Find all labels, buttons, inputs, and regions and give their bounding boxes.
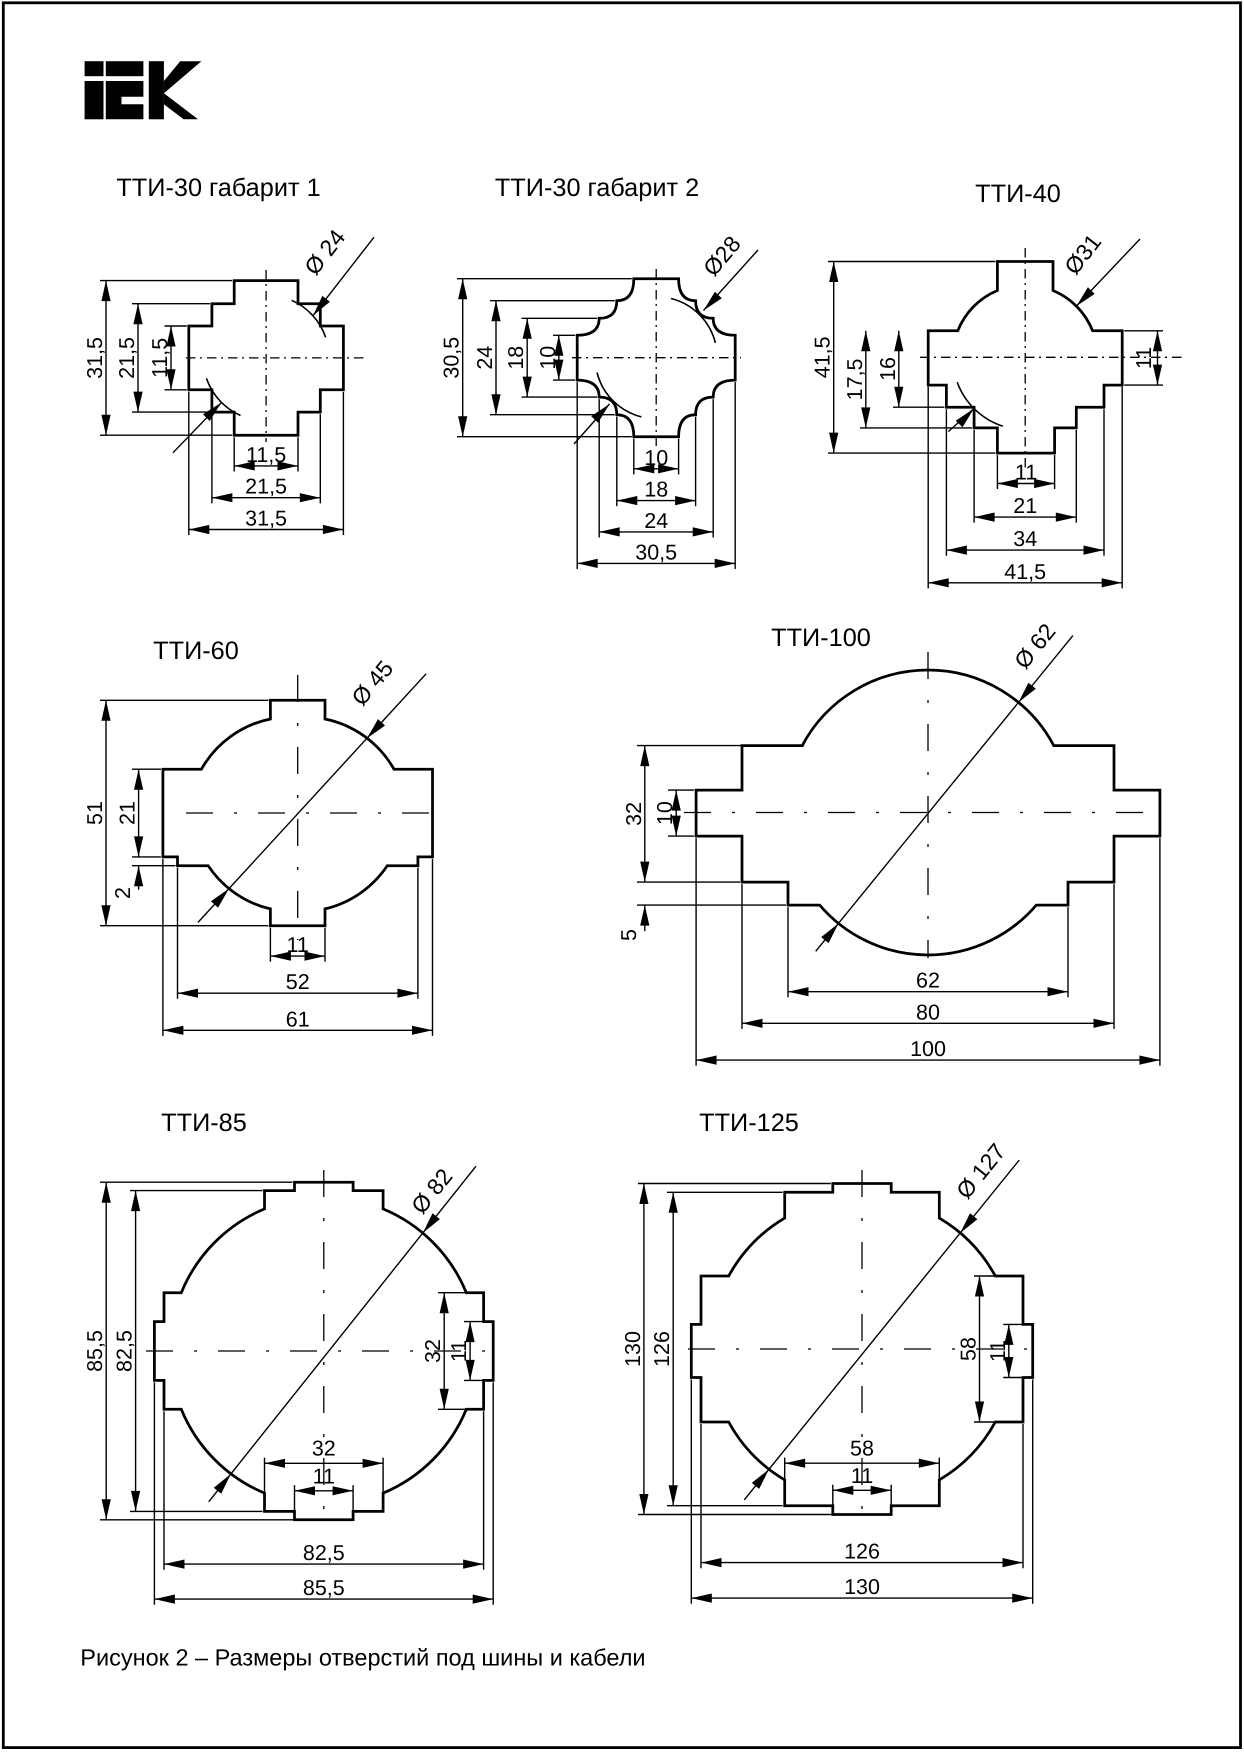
svg-text:ТТИ-85: ТТИ-85 <box>161 1109 247 1137</box>
svg-text:85,5: 85,5 <box>303 1576 345 1600</box>
svg-text:130: 130 <box>844 1575 880 1599</box>
svg-text:18: 18 <box>644 478 668 502</box>
svg-text:31,5: 31,5 <box>83 337 107 379</box>
svg-text:ТТИ-40: ТТИ-40 <box>975 180 1061 208</box>
svg-text:ТТИ-30 габарит 2: ТТИ-30 габарит 2 <box>495 174 699 202</box>
svg-text:52: 52 <box>286 970 310 994</box>
svg-text:11: 11 <box>1015 461 1037 485</box>
svg-text:18: 18 <box>504 346 528 370</box>
svg-text:32: 32 <box>312 1437 336 1461</box>
svg-text:ТТИ-30 габарит 1: ТТИ-30 габарит 1 <box>116 174 320 202</box>
svg-text:21,5: 21,5 <box>115 337 139 379</box>
svg-text:11: 11 <box>851 1464 873 1488</box>
svg-text:24: 24 <box>473 346 497 370</box>
svg-text:58: 58 <box>850 1437 874 1461</box>
svg-text:100: 100 <box>910 1037 946 1061</box>
svg-text:85,5: 85,5 <box>83 1330 107 1372</box>
svg-text:11: 11 <box>447 1340 471 1362</box>
svg-text:82,5: 82,5 <box>113 1330 137 1372</box>
svg-text:ТТИ-60: ТТИ-60 <box>153 637 239 665</box>
svg-text:32: 32 <box>622 802 646 826</box>
svg-text:10: 10 <box>536 346 560 370</box>
svg-text:11: 11 <box>1132 347 1156 369</box>
svg-text:126: 126 <box>844 1540 880 1564</box>
svg-text:16: 16 <box>876 357 900 381</box>
svg-text:11,5: 11,5 <box>148 338 172 378</box>
svg-text:61: 61 <box>286 1007 310 1031</box>
svg-text:126: 126 <box>650 1331 674 1367</box>
svg-text:34: 34 <box>1013 527 1037 551</box>
svg-text:82,5: 82,5 <box>303 1541 345 1565</box>
svg-text:51: 51 <box>83 801 107 825</box>
svg-text:31,5: 31,5 <box>245 507 287 531</box>
svg-text:11,5: 11,5 <box>246 443 286 467</box>
svg-text:21: 21 <box>1013 494 1037 518</box>
svg-text:21,5: 21,5 <box>245 475 287 499</box>
svg-text:80: 80 <box>916 1000 940 1024</box>
svg-text:32: 32 <box>421 1339 445 1363</box>
svg-text:30,5: 30,5 <box>440 337 464 379</box>
svg-text:10: 10 <box>644 446 668 470</box>
svg-text:ТТИ-100: ТТИ-100 <box>771 624 871 652</box>
svg-text:11: 11 <box>287 933 309 957</box>
svg-text:130: 130 <box>621 1331 645 1367</box>
svg-text:ТТИ-125: ТТИ-125 <box>699 1109 799 1137</box>
svg-text:5: 5 <box>617 929 641 941</box>
svg-text:24: 24 <box>644 509 668 533</box>
svg-text:11: 11 <box>986 1340 1010 1362</box>
svg-text:17,5: 17,5 <box>843 358 867 400</box>
svg-text:41,5: 41,5 <box>1004 560 1046 584</box>
svg-text:2: 2 <box>111 887 135 899</box>
svg-text:10: 10 <box>653 801 677 825</box>
svg-text:30,5: 30,5 <box>635 540 677 564</box>
svg-text:41,5: 41,5 <box>811 336 835 378</box>
svg-text:11: 11 <box>313 1465 335 1489</box>
svg-text:62: 62 <box>916 969 940 993</box>
svg-text:58: 58 <box>957 1337 981 1361</box>
svg-text:Рисунок 2 – Размеры отверстий: Рисунок 2 – Размеры отверстий под шины и… <box>80 1645 645 1671</box>
svg-text:21: 21 <box>116 801 140 825</box>
